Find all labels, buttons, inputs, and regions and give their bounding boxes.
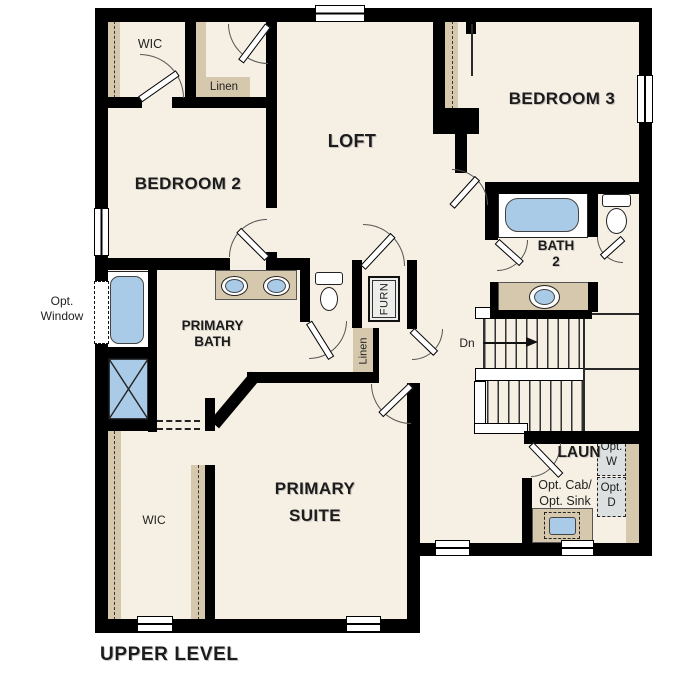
- linen-upper-label: Linen: [196, 81, 252, 93]
- stairs-down-arrow: [483, 342, 527, 344]
- window: [94, 208, 109, 256]
- wall: [185, 97, 277, 108]
- toilet-bowl: [320, 287, 338, 311]
- wic-primary-label: WIC: [122, 513, 186, 527]
- primary-bath-label: PRIMARY BATH: [155, 318, 270, 350]
- linen-mid-label: Linen: [357, 337, 369, 364]
- window: [561, 540, 594, 556]
- closet-door-line: [471, 24, 473, 76]
- exterior-wall-top: [95, 8, 652, 22]
- bedroom3-label: BEDROOM 3: [482, 89, 642, 109]
- wall: [95, 347, 157, 358]
- floor-primary-suite-wing: [101, 548, 414, 626]
- opt-dryer-label-2: D: [598, 496, 625, 511]
- loft-label: LOFT: [282, 131, 422, 152]
- window: [137, 616, 173, 632]
- floor-plan: Linen Dn Opt. W Opt. D FURN: [0, 0, 687, 687]
- wall: [185, 21, 196, 108]
- stair-rail: [475, 368, 584, 381]
- cased-opening: [157, 420, 200, 430]
- linen-closet-mid: Linen: [353, 328, 373, 373]
- shower: [107, 357, 150, 421]
- wall: [247, 372, 379, 383]
- wall: [95, 258, 230, 270]
- wall: [485, 182, 652, 194]
- wall: [373, 328, 379, 373]
- window: [435, 540, 470, 556]
- window: [315, 5, 365, 22]
- sink: [225, 279, 244, 293]
- exterior-wall-right-lower: [407, 543, 420, 633]
- toilet-bowl: [606, 208, 627, 234]
- wall: [95, 97, 142, 108]
- opt-cabinet-label: Opt. Cab/ Opt. Sink: [528, 477, 602, 509]
- closet-rod: [191, 465, 205, 620]
- wall-block: [433, 108, 479, 134]
- laundry-label: LAUN: [548, 444, 610, 462]
- toilet-tank: [602, 194, 631, 207]
- wall: [433, 21, 445, 111]
- wall: [490, 282, 498, 312]
- stair-landing-line: [583, 319, 585, 431]
- primary-suite-label: PRIMARY SUITE: [235, 475, 395, 529]
- stair-rail: [474, 423, 528, 434]
- bathtub: [505, 198, 579, 232]
- closet-rod: [107, 431, 121, 620]
- furnace-unit: FURN: [368, 276, 400, 322]
- wall: [352, 260, 362, 328]
- window: [346, 616, 381, 632]
- stairs-down-label: Dn: [455, 336, 479, 350]
- wall: [205, 398, 215, 431]
- wall: [300, 258, 310, 322]
- wall: [455, 133, 467, 173]
- wall: [588, 282, 598, 312]
- furnace-label: FURN: [378, 283, 390, 316]
- bathtub: [110, 276, 144, 344]
- laundry-side-shelf: [626, 434, 640, 543]
- closet-rod: [107, 21, 120, 98]
- wall: [485, 182, 498, 240]
- opt-dryer-label-1: Opt.: [598, 481, 625, 496]
- sink: [534, 289, 555, 305]
- closet-rod: [445, 21, 458, 109]
- bedroom2-label: BEDROOM 2: [98, 174, 278, 194]
- wall: [490, 310, 592, 319]
- sink: [267, 279, 286, 293]
- toilet-tank: [315, 272, 343, 285]
- plan-title: UPPER LEVEL: [100, 644, 320, 666]
- optional-window: [94, 281, 109, 344]
- stair-landing-line: [592, 313, 640, 315]
- wall: [407, 260, 417, 329]
- stair-landing-line: [583, 368, 640, 370]
- wall: [588, 192, 598, 237]
- wall: [205, 465, 215, 620]
- wic-upper-label: WIC: [120, 37, 180, 51]
- bath2-label: BATH 2: [516, 238, 596, 270]
- opt-window-label: Opt. Window: [30, 294, 94, 324]
- stairs-down-arrowhead: [526, 337, 538, 347]
- optional-sink: [549, 517, 576, 535]
